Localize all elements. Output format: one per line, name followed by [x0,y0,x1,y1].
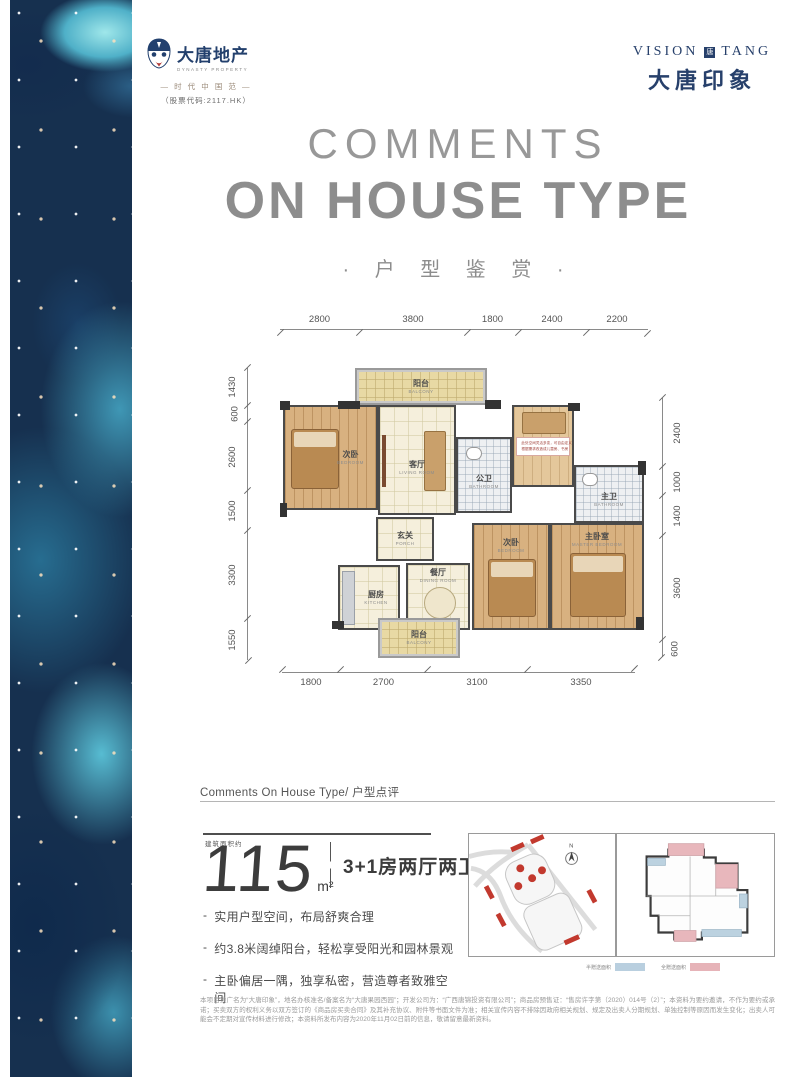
toilet-icon [582,473,598,486]
section-title: Comments On House Type/ 户型点评 [200,784,399,800]
dim-label: 600 [669,641,680,657]
room-label-cn: 公卫 [469,474,499,484]
legend-item: 半赠送面积 [586,963,645,971]
room-label-en: BALCONY [408,389,433,395]
room-label-cn: 主卧室 [572,533,622,543]
dim-label: 3100 [466,677,487,688]
dim-label: 2200 [606,314,627,325]
room-label-cn: 主卫 [594,493,624,503]
daybed-icon [522,412,566,434]
room-balcony-top: 阳台BALCONY [355,368,487,405]
vision-tang-logo: VISION 唐 TANG 大唐印象 [626,44,778,95]
selling-point: -约3.8米阔绰阳台，轻松享受阳光和园林景观 [203,940,458,957]
room-flex: 此处空间灵活多变，可自由定义 根据需求改造成儿童房、书房 [512,405,574,487]
dim-label: 2700 [373,677,394,688]
room-label-cn: 厨房 [364,590,387,600]
room-porch: 玄关PORCH [376,517,434,561]
floor-plan: 阳台BALCONY 次卧BEDROOM 客厅LIVING ROOM 公卫BATH… [280,365,648,660]
wall-segment [280,401,290,410]
wall-segment [280,503,287,517]
selling-point: -实用户型空间，布局舒爽合理 [203,908,458,925]
tang-text: TANG [721,44,771,60]
poster-page: 大唐地产 DYNASTY PROPERTY — 时 代 中 国 范 — （股票代… [0,0,800,1077]
room-label-en: BEDROOM [337,460,364,466]
dynasty-slogan: — 时 代 中 国 范 — [146,81,266,92]
sofa-icon [424,431,446,491]
tang-seal-icon: 唐 [704,47,715,58]
area-number: 115 [201,840,316,896]
room-label-en: KITCHEN [364,600,387,606]
bullet-marker: - [203,940,207,957]
dim-label: 2600 [227,446,238,467]
compass-label: N [569,844,573,850]
dim-label: 3800 [402,314,423,325]
bed-icon [570,553,626,617]
compass-icon: N [566,844,578,865]
opera-mask-icon [146,38,172,74]
legend-label: 全赠送面积 [661,964,686,971]
dims-right: 2400 1000 1400 3600 600 [662,398,680,657]
dims-top: 2800 3800 1800 2400 2200 [280,312,648,330]
title-line1: COMMENTS [133,120,783,168]
room-master-bedroom: 主卧室MASTER BEDROOM [550,523,644,630]
room-label-en: PORCH [396,541,415,547]
dim-label: 2800 [309,314,330,325]
dim-label: 1800 [482,314,503,325]
dynasty-logo: 大唐地产 DYNASTY PROPERTY — 时 代 中 国 范 — （股票代… [146,38,286,106]
room-label-cn: 次卧 [337,450,364,460]
room-bath-master: 主卫BATHROOM [574,465,644,523]
room-bedroom-bottom: 次卧BEDROOM [472,523,550,630]
dynasty-name-cn: 大唐地产 [177,46,249,65]
bullet-text: 约3.8米阔绰阳台，轻松享受阳光和园林景观 [214,940,453,957]
dim-label: 1000 [672,471,683,492]
dim-label: 1800 [300,677,321,688]
bed-icon [291,429,339,489]
site-plan-diagram: N [468,833,616,957]
dim-label: 2400 [541,314,562,325]
toilet-icon [466,447,482,460]
dim-label: 600 [230,406,241,422]
room-label-cn: 玄关 [396,531,415,541]
dim-label: 3350 [570,677,591,688]
dim-label: 1550 [227,629,238,650]
dim-label: 2400 [672,422,683,443]
legend-label: 半赠送面积 [586,964,611,971]
dining-table-icon [424,587,456,619]
spec-divider [330,842,331,888]
dim-label: 3600 [672,577,683,598]
bed-icon [488,559,536,617]
legend-swatch-blue [615,963,645,971]
dims-left: 1430 600 2600 1500 3300 1550 [230,368,248,660]
bullet-text: 实用户型空间，布局舒爽合理 [214,908,374,925]
room-label-cn: 阳台 [406,630,431,640]
wall-segment [568,403,580,411]
room-label-en: MASTER BEDROOM [572,543,622,549]
area-value: 115 m² [203,840,334,896]
wall-segment [338,401,360,409]
room-label-cn: 阳台 [408,379,433,389]
tv-wall-icon [382,435,386,487]
dim-label: 1500 [227,500,238,521]
section-divider [200,801,775,802]
unit-highlight-diagram [616,833,775,957]
layout-spec: 3+1房两厅两卫 [343,852,478,879]
dim-label: 1400 [672,505,683,526]
fluid-art-strip [10,0,132,1077]
project-name-cn: 大唐印象 [626,63,778,95]
wall-segment [332,621,344,629]
flex-note-line1: 此处空间灵活多变，可自由定义 [521,440,564,446]
area-unit: m² [317,878,333,894]
disclaimer-text: 本项目推广名为“大唐印象”，地名办核准名/备案名为“大唐果园西园”；开发公司为：… [200,996,775,1025]
legend-swatch-pink [690,963,720,971]
room-balcony-bottom: 阳台BALCONY [378,618,460,658]
dims-bottom: 1800 2700 3100 3350 [282,672,635,688]
dim-label: 3300 [227,564,238,585]
flex-note-line2: 根据需求改造成儿童房、书房 [521,447,564,453]
wall-segment [638,461,646,475]
vision-text: VISION [633,44,698,60]
room-label-cn: 次卧 [498,538,525,548]
title-line2: ON HOUSE TYPE [133,171,783,231]
bullet-marker: - [203,908,207,925]
flex-room-note: 此处空间灵活多变，可自由定义 根据需求改造成儿童房、书房 [516,437,570,456]
diagram-legend: 半赠送面积 全赠送面积 [586,963,720,971]
room-label-cn: 餐厅 [420,569,457,579]
dynasty-name-en: DYNASTY PROPERTY [177,67,249,72]
room-bath-public: 公卫BATHROOM [456,437,512,513]
room-label-en: BEDROOM [498,548,525,554]
wall-segment [636,617,644,630]
kitchen-counter-icon [342,571,355,625]
dim-label: 1430 [227,376,238,397]
dynasty-stock-code: （股票代码:2117.HK） [146,95,266,106]
room-bedroom-top-left: 次卧BEDROOM [283,405,378,510]
title-subtitle-cn: · 户 型 鉴 赏 · [133,253,783,282]
room-label-en: BALCONY [406,640,431,646]
room-label-en: BATHROOM [469,484,499,490]
wall-segment [485,400,501,409]
room-living: 客厅LIVING ROOM [378,405,456,515]
legend-item: 全赠送面积 [661,963,720,971]
page-title: COMMENTS ON HOUSE TYPE · 户 型 鉴 赏 · [133,120,783,282]
room-label-en: DINING ROOM [420,579,457,585]
room-label-en: BATHROOM [594,503,624,509]
